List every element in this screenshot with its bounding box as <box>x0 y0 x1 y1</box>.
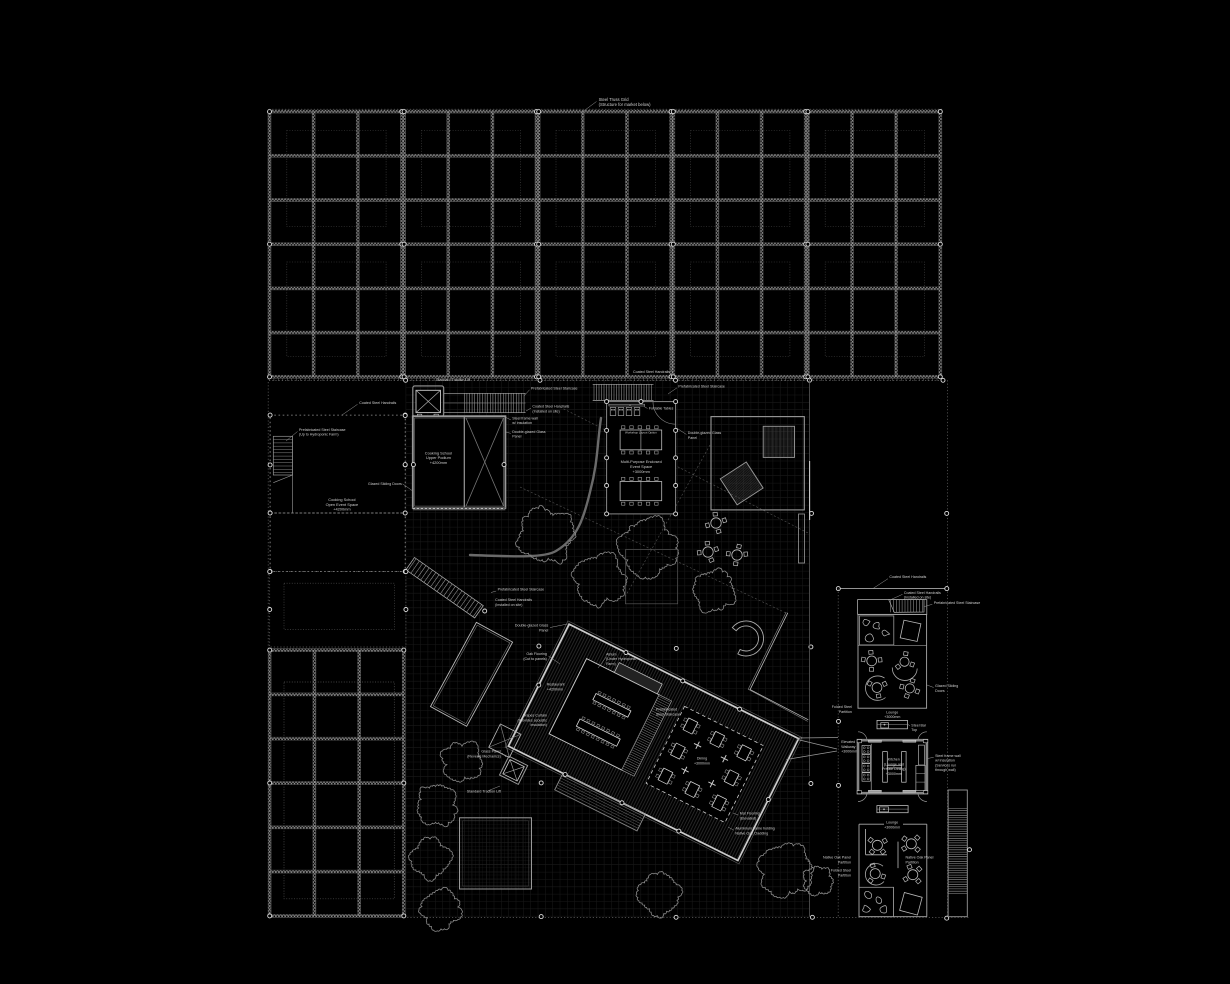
svg-text:+4200mm: +4200mm <box>333 507 350 512</box>
svg-text:Restaurant: Restaurant <box>547 683 565 687</box>
svg-text:Lounge: Lounge <box>886 710 898 714</box>
svg-text:Doors: Doors <box>935 689 945 693</box>
svg-text:Steel Staircase: Steel Staircase <box>656 712 680 716</box>
svg-text:Coated Steel Handrails: Coated Steel Handrails <box>633 370 670 374</box>
svg-text:w/ insulation: w/ insulation <box>935 759 955 763</box>
svg-text:Native Oak Panel: Native Oak Panel <box>906 856 934 860</box>
svg-text:Prefabricated Steel Staircase: Prefabricated Steel Staircase <box>299 428 346 432</box>
svg-text:Coated Steel Handrails: Coated Steel Handrails <box>889 575 926 579</box>
svg-text:(Structure for market below): (Structure for market below) <box>599 102 651 107</box>
svg-text:Prefabricated Steel Staircase: Prefabricated Steel Staircase <box>678 384 725 388</box>
svg-text:Native Oak Cladding: Native Oak Cladding <box>735 832 768 836</box>
svg-text:Aluminium frame holding: Aluminium frame holding <box>735 827 775 831</box>
svg-text:(Provides acoustic: (Provides acoustic <box>518 718 548 722</box>
svg-text:Standard Traction Lift: Standard Traction Lift <box>436 378 470 382</box>
svg-text:Kitchen: Kitchen <box>888 758 900 762</box>
svg-text:(Installed on site): (Installed on site) <box>495 603 522 607</box>
svg-text:+4200mm: +4200mm <box>547 687 563 691</box>
svg-text:Steel frame wall: Steel frame wall <box>935 754 961 758</box>
svg-text:Walkway: Walkway <box>841 745 855 749</box>
svg-text:Partition: Partition <box>839 710 852 714</box>
svg-text:Mat Flooring: Mat Flooring <box>740 812 760 816</box>
svg-text:Partition: Partition <box>838 860 851 864</box>
svg-text:Glazed Sliding Doors: Glazed Sliding Doors <box>368 482 402 486</box>
svg-text:Folded Steel: Folded Steel <box>832 705 852 709</box>
svg-text:(Up to Hydroponic Farm): (Up to Hydroponic Farm) <box>299 433 339 437</box>
svg-text:Steel Bar: Steel Bar <box>911 723 927 727</box>
svg-text:insulation): insulation) <box>531 723 547 727</box>
svg-text:Partition: Partition <box>838 873 851 877</box>
svg-text:Steel frame wall: Steel frame wall <box>512 416 538 420</box>
svg-text:Private Dining): Private Dining) <box>882 767 906 771</box>
svg-text:Prefabricated Steel Staircase: Prefabricated Steel Staircase <box>498 588 545 592</box>
svg-text:(Under Hydroponic: (Under Hydroponic <box>606 657 636 661</box>
svg-text:Lounge: Lounge <box>886 821 898 825</box>
svg-text:Folded Steel: Folded Steel <box>831 869 851 873</box>
svg-text:w/ insulation: w/ insulation <box>512 421 532 425</box>
svg-text:+3000mm: +3000mm <box>694 761 710 765</box>
svg-text:Prefabricated Steel Staircase: Prefabricated Steel Staircase <box>531 386 578 390</box>
svg-text:+3000mm: +3000mm <box>886 772 902 776</box>
svg-text:Oak Flooring: Oak Flooring <box>526 652 547 656</box>
svg-text:+4200mm: +4200mm <box>430 460 447 465</box>
svg-text:Double-glazed Glass: Double-glazed Glass <box>515 624 549 628</box>
svg-text:Partition: Partition <box>906 860 919 864</box>
svg-text:(Lounge and: (Lounge and <box>884 762 904 766</box>
svg-text:Coated Steel Handrails: Coated Steel Handrails <box>532 405 569 409</box>
svg-text:Dining: Dining <box>697 757 707 761</box>
svg-text:Coated Steel Handrails: Coated Steel Handrails <box>495 598 532 602</box>
svg-text:(Installed on site): (Installed on site) <box>532 409 559 413</box>
svg-text:Workshop Layout Option: Workshop Layout Option <box>625 430 657 434</box>
svg-text:Double-glazed Glass: Double-glazed Glass <box>512 430 546 434</box>
svg-text:+3000mm: +3000mm <box>884 826 900 830</box>
svg-text:Drapes Curtain: Drapes Curtain <box>523 714 547 718</box>
svg-text:Panel: Panel <box>512 435 521 439</box>
svg-text:Panel: Panel <box>539 628 548 632</box>
svg-text:Farm): Farm) <box>606 662 616 666</box>
svg-text:Prefabricated Steel Staircase: Prefabricated Steel Staircase <box>934 601 981 605</box>
svg-text:+3000mm: +3000mm <box>632 469 649 474</box>
svg-text:Coated Steel Handrails: Coated Steel Handrails <box>904 591 941 595</box>
svg-text:Panel: Panel <box>688 436 697 440</box>
svg-text:(Cut to panels): (Cut to panels) <box>523 657 547 661</box>
svg-text:Coated Steel Handrails: Coated Steel Handrails <box>359 401 396 405</box>
svg-text:Foldable Tables: Foldable Tables <box>649 406 674 410</box>
svg-text:through wall): through wall) <box>935 768 956 772</box>
svg-text:Top: Top <box>911 728 917 732</box>
svg-text:Atrium: Atrium <box>606 652 616 656</box>
svg-text:Double-glazed Glass: Double-glazed Glass <box>688 431 722 435</box>
svg-text:+3000mm: +3000mm <box>884 715 900 719</box>
svg-text:Glazed Sliding: Glazed Sliding <box>935 684 958 688</box>
svg-text:Glass Panel: Glass Panel <box>481 750 501 754</box>
svg-text:(Installed on site): (Installed on site) <box>904 596 931 600</box>
svg-text:+3000mm: +3000mm <box>841 750 857 754</box>
svg-text:(Services run: (Services run <box>935 763 956 767</box>
svg-text:(Reveals Mechanics): (Reveals Mechanics) <box>467 754 501 758</box>
svg-text:(Elevated): (Elevated) <box>740 816 756 820</box>
svg-text:Elevated: Elevated <box>841 740 855 744</box>
svg-text:Standard Traction Lift: Standard Traction Lift <box>467 790 501 794</box>
svg-text:Prefabricated: Prefabricated <box>656 708 677 712</box>
svg-text:Native Oak Panel: Native Oak Panel <box>823 856 851 860</box>
